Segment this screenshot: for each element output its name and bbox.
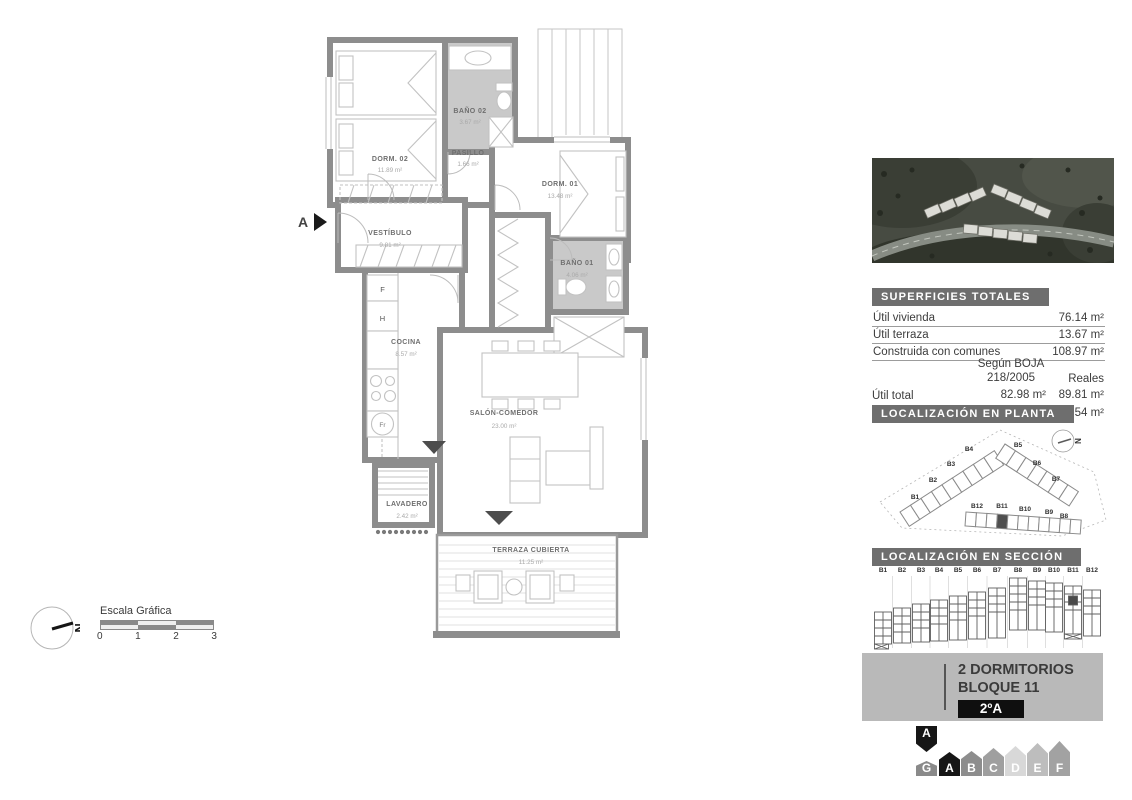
planta-highlight-unit	[996, 514, 1007, 529]
room-bano02-area: 3.67 m²	[459, 119, 480, 126]
selected-letter-marker: A	[916, 726, 937, 752]
letter-badge-e[interactable]: E	[1027, 743, 1048, 776]
room-lavadero-area: 2.42 m²	[396, 513, 417, 520]
svg-text:B10: B10	[1048, 567, 1060, 574]
svg-text:B7: B7	[993, 567, 1002, 574]
seccion-diagram: B1 B2 B3 B4 B5 B6 B7 B8 B9 B10 B11 B12	[872, 564, 1115, 652]
svg-text:B1: B1	[879, 567, 888, 574]
room-dorm01-area: 13.48 m²	[548, 193, 573, 200]
svg-text:B7: B7	[1052, 476, 1061, 483]
row-value-boja: 82.98 m²	[975, 388, 1047, 402]
room-bano01-name: BAÑO 01	[560, 258, 593, 267]
common-area-stripes	[538, 29, 622, 139]
seccion-blocks	[875, 578, 1101, 649]
row-value: 76.14 m²	[1059, 312, 1104, 324]
planta-header: LOCALIZACIÓN EN PLANTA	[872, 405, 1074, 423]
scale-title: Escala Gráfica	[100, 605, 217, 617]
svg-text:B4: B4	[965, 446, 974, 453]
superficies-header: SUPERFICIES TOTALES	[872, 288, 1049, 306]
row-label: Útil vivienda	[873, 312, 935, 324]
compass-north-label: N	[72, 623, 80, 632]
aerial-photo	[872, 158, 1114, 263]
row-value-reales: 89.81 m²	[1047, 388, 1105, 402]
scale-tick: 0	[97, 631, 103, 642]
room-vestibulo-name: VESTÍBULO	[368, 228, 412, 237]
unit-letter-selector: A A B C D E F G	[916, 726, 1076, 776]
row-label: Útil total	[872, 390, 975, 402]
floor-plan: A DORM. 02 11.89 m² BAÑO 02 3.67 m² PASI…	[270, 25, 740, 650]
unit-info-box: 2 DORMITORIOS BLOQUE 11 2ºA	[862, 653, 1103, 721]
svg-text:B11: B11	[996, 503, 1008, 510]
planta-diagram: N	[872, 424, 1115, 546]
boja-header-row: Según BOJA 218/2005 Reales	[872, 357, 1105, 386]
room-terraza-name: TERRAZA CUBIERTA	[492, 547, 569, 554]
svg-text:B8: B8	[1060, 513, 1069, 520]
unit-type: 2 DORMITORIOS	[958, 662, 1074, 680]
appliance-fridge-label: F	[380, 285, 385, 294]
seccion-highlight-unit	[1069, 596, 1078, 605]
svg-text:B3: B3	[917, 567, 926, 574]
section-marker-label: A	[298, 214, 308, 230]
row-value: 13.67 m²	[1059, 329, 1104, 341]
table-row: Útil terraza 13.67 m²	[872, 327, 1105, 344]
planta-north-label: N	[1073, 438, 1082, 444]
svg-text:B12: B12	[971, 503, 983, 510]
boja-col-header: Según BOJA 218/2005	[975, 357, 1047, 386]
letter-badge-b[interactable]: B	[961, 751, 982, 776]
svg-text:B6: B6	[973, 567, 982, 574]
planta-block-right-wing	[996, 444, 1079, 506]
scale-ticks: 0 1 2 3	[97, 631, 217, 642]
scale-bar: Escala Gráfica 0 1 2 3	[100, 605, 217, 642]
room-cocina-area: 8.57 m²	[395, 351, 416, 358]
unit-number-badge: 2ºA	[958, 700, 1024, 718]
svg-text:B12: B12	[1086, 567, 1098, 574]
room-cocina-name: COCINA	[391, 339, 421, 346]
room-terraza-area: 11.25 m²	[519, 559, 543, 566]
room-pasillo-area: 1.66 m²	[457, 161, 478, 168]
scale-tick: 2	[173, 631, 179, 642]
room-lavadero-name: LAVADERO	[386, 501, 428, 508]
svg-text:B1: B1	[911, 494, 920, 501]
appliance-oven-label: H	[380, 314, 385, 323]
svg-text:B5: B5	[1014, 442, 1023, 449]
room-dorm02-area: 11.89 m²	[378, 167, 402, 174]
letter-badge-a[interactable]: A	[939, 752, 960, 776]
room-bano02-name: BAÑO 02	[453, 106, 486, 115]
row-label: Útil terraza	[873, 329, 929, 341]
unit-block: BLOQUE 11	[958, 680, 1074, 698]
svg-text:B9: B9	[1045, 509, 1054, 516]
room-bano01-area: 4.06 m²	[566, 272, 587, 279]
table-row: Útil vivienda 76.14 m²	[872, 310, 1105, 327]
svg-text:B9: B9	[1033, 567, 1042, 574]
page: A DORM. 02 11.89 m² BAÑO 02 3.67 m² PASI…	[0, 0, 1132, 800]
svg-text:B11: B11	[1067, 567, 1079, 574]
svg-text:B2: B2	[898, 567, 907, 574]
room-vestibulo-area: 9.81 m²	[379, 242, 400, 249]
table-row: Útil total 82.98 m² 89.81 m²	[872, 386, 1105, 404]
divider	[944, 664, 946, 710]
room-dorm01-name: DORM. 01	[542, 181, 578, 188]
scale-tick: 3	[211, 631, 217, 642]
room-salon-name: SALÓN-COMEDOR	[470, 408, 539, 417]
letter-badge-g[interactable]: G	[916, 761, 937, 776]
room-salon-area: 23.00 m²	[492, 423, 517, 430]
svg-text:B3: B3	[947, 461, 956, 468]
superficies-table: Útil vivienda 76.14 m² Útil terraza 13.6…	[872, 310, 1105, 361]
room-pasillo-name: PASILLO	[452, 150, 485, 157]
letter-badge-f[interactable]: F	[1049, 741, 1070, 776]
svg-text:B8: B8	[1014, 567, 1023, 574]
svg-text:B4: B4	[935, 567, 944, 574]
letter-badge-c[interactable]: C	[983, 748, 1004, 776]
svg-text:B2: B2	[929, 477, 938, 484]
section-marker: A	[298, 213, 327, 231]
section-marker-arrow-icon	[314, 213, 327, 231]
reales-col-header: Reales	[1047, 372, 1105, 386]
compass-icon: N	[28, 602, 80, 654]
room-dorm02-name: DORM. 02	[372, 156, 408, 163]
letter-badge-d[interactable]: D	[1005, 746, 1026, 776]
scale-bar-graphic	[100, 620, 214, 630]
svg-text:B10: B10	[1019, 506, 1031, 513]
appliance-fr-label: Fr	[379, 422, 386, 429]
seccion-column-labels: B1 B2 B3 B4 B5 B6 B7 B8 B9 B10 B11 B12	[879, 567, 1098, 574]
svg-text:B5: B5	[954, 567, 963, 574]
svg-text:B6: B6	[1033, 460, 1042, 467]
scale-tick: 1	[135, 631, 141, 642]
